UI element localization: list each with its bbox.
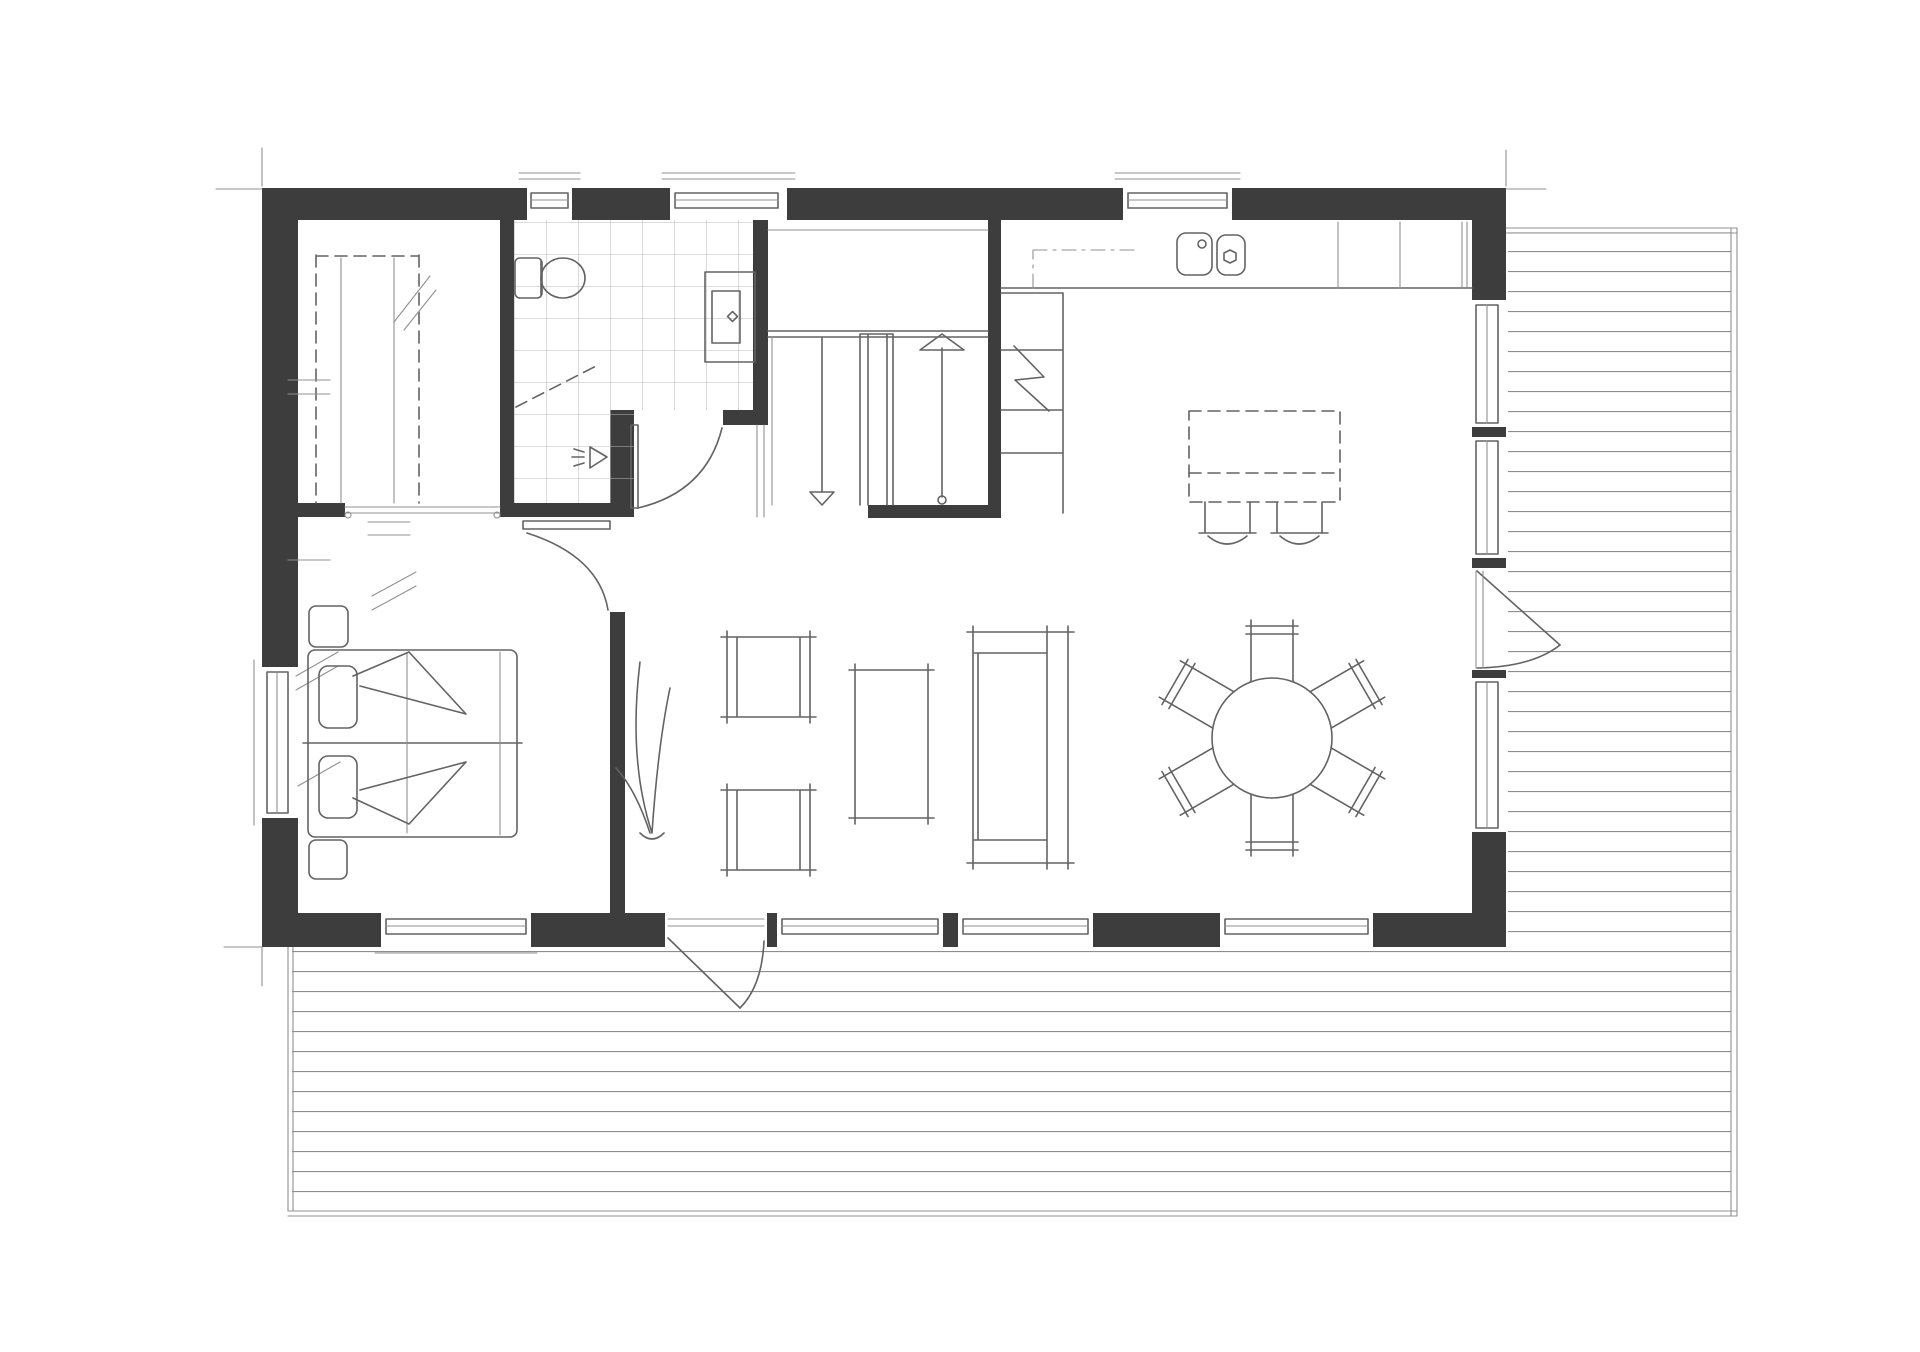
stair-run-down xyxy=(810,337,834,505)
kitchen-sink xyxy=(1177,233,1245,275)
wall-top-2 xyxy=(572,188,670,220)
wall-bottom-1 xyxy=(262,913,381,947)
window-bottom-bedroom xyxy=(375,919,537,953)
bar-stool-2 xyxy=(1271,502,1328,544)
floor-plan-canvas xyxy=(0,0,1920,1352)
wall-bottom-5 xyxy=(1093,913,1220,947)
corner-sketch-ticks xyxy=(216,148,1546,986)
windows xyxy=(254,173,1498,953)
wall-right-4 xyxy=(1472,670,1506,678)
wall-top-3 xyxy=(787,188,1123,220)
window-top-hall xyxy=(662,173,795,208)
bathroom xyxy=(514,220,755,503)
kitchen-counter-divisions xyxy=(1338,222,1467,288)
wall-left-1 xyxy=(262,188,298,667)
wall-hall-bottom xyxy=(868,505,1001,518)
stair-run-up xyxy=(920,334,964,504)
wall-right-1 xyxy=(1472,188,1506,300)
bar-stool-1 xyxy=(1199,502,1256,544)
window-bottom-living-2 xyxy=(963,919,1088,934)
deck-planks-bottom xyxy=(292,951,1508,1211)
wall-top-4 xyxy=(1232,188,1506,220)
sofa xyxy=(967,626,1074,869)
wall-right-3 xyxy=(1472,558,1506,568)
wardrobe-dashed-outline xyxy=(316,255,419,503)
dining-chairs xyxy=(1157,620,1387,856)
deck-planks-right xyxy=(1508,232,1731,1211)
living-room xyxy=(616,626,1074,876)
duvet-fold-bottom xyxy=(353,762,466,824)
wall-bedroom-living xyxy=(610,612,625,913)
kitchen xyxy=(1001,222,1472,544)
stair-center-railing xyxy=(860,334,893,505)
refrigerator-icon xyxy=(1014,346,1049,411)
duvet-fold-top xyxy=(353,652,466,714)
exterior-walls xyxy=(216,148,1546,986)
wall-hall-kitchen xyxy=(988,220,1001,518)
walk-in-closet xyxy=(288,255,436,786)
nightstand-2 xyxy=(309,840,347,879)
wall-closet-stub xyxy=(298,503,345,517)
wardrobe-ticks xyxy=(288,380,410,560)
sink-faucet xyxy=(1224,250,1236,263)
coffee-table xyxy=(849,664,934,824)
kitchen-island xyxy=(1189,411,1340,502)
armchair-1 xyxy=(721,631,816,723)
wall-bottom-2 xyxy=(531,913,665,947)
wall-cabinet-dashdot xyxy=(1033,250,1140,288)
window-right-2 xyxy=(1476,441,1498,554)
sink-basin-left xyxy=(1177,233,1212,275)
window-top-bathroom xyxy=(519,173,580,208)
wall-bottom-3 xyxy=(767,913,777,947)
staircase xyxy=(768,230,988,505)
pillow-1 xyxy=(319,666,357,728)
armchair-2 xyxy=(721,784,816,876)
door-bedroom xyxy=(523,521,610,610)
closet-opening-trim xyxy=(345,507,500,513)
wardrobe-depth-lines xyxy=(341,258,394,503)
sink-drain xyxy=(1198,240,1206,248)
window-top-kitchen xyxy=(1115,173,1240,208)
sink-basin-right xyxy=(1217,235,1245,275)
wall-bedroom-top xyxy=(500,503,634,517)
wardrobe-rail-slashes xyxy=(296,276,436,786)
window-bottom-living-1 xyxy=(782,919,938,934)
pillow-2 xyxy=(319,756,357,818)
hall-passage-trim xyxy=(757,425,764,517)
stair-arrow-down-icon xyxy=(810,492,834,505)
dining-area xyxy=(1157,620,1387,856)
bedroom xyxy=(303,606,522,879)
tall-cabinets xyxy=(1001,293,1063,513)
dining-table xyxy=(1212,678,1332,798)
island-dashed-outline xyxy=(1189,411,1340,502)
window-bottom-dining xyxy=(1225,919,1368,934)
window-right-1 xyxy=(1476,305,1498,423)
wall-bathroom-bottom-right xyxy=(723,410,753,425)
nightstand-1 xyxy=(309,606,348,647)
wall-bottom-4 xyxy=(943,913,958,947)
door-bathroom xyxy=(631,425,722,508)
wall-top-1 xyxy=(262,188,527,220)
wall-right-2 xyxy=(1472,427,1506,437)
wall-right-5 xyxy=(1472,832,1506,947)
window-left-bedroom xyxy=(254,660,288,825)
wall-closet-bathroom xyxy=(500,220,514,503)
window-right-3 xyxy=(1476,682,1498,828)
